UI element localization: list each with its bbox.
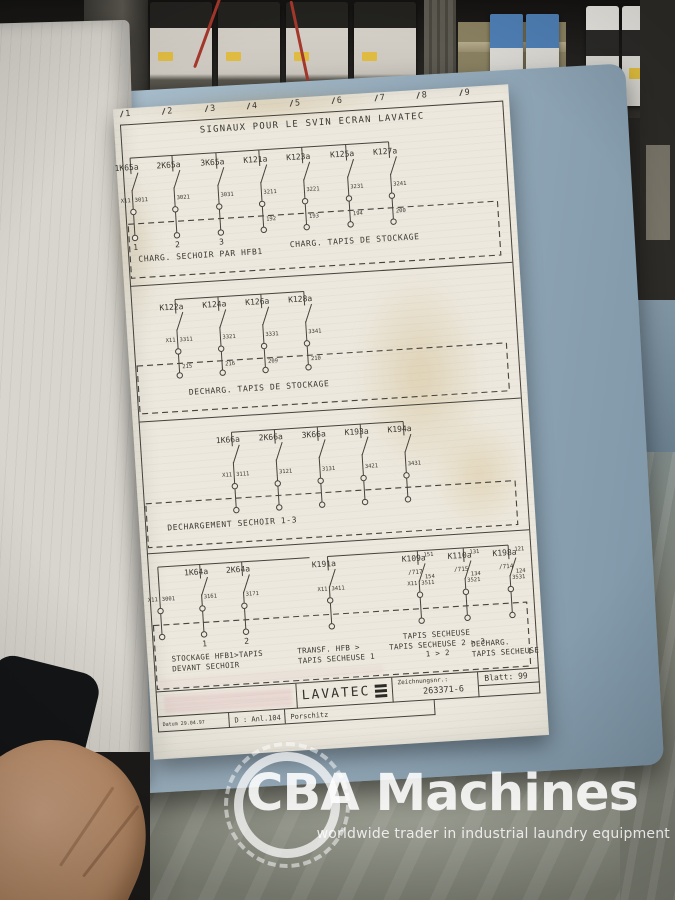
connector-circle	[263, 367, 269, 373]
wire-line	[263, 324, 264, 343]
wire-line	[305, 204, 306, 224]
wire-number: 194	[353, 212, 363, 218]
wire-line	[261, 182, 262, 201]
wire-line	[242, 574, 250, 592]
wire-line	[364, 481, 365, 499]
connector-circle	[159, 634, 165, 640]
terminal-number: 3341	[308, 329, 322, 335]
connector-circle	[405, 496, 411, 502]
wire-line	[245, 609, 246, 629]
wire-line	[276, 460, 277, 481]
wire-line	[420, 598, 421, 618]
wire-number: 193	[309, 214, 319, 220]
connector-circle	[329, 623, 335, 629]
connector-circle	[220, 370, 226, 376]
connector-circle	[174, 232, 180, 238]
title-block-sheet-cell: Blatt: 99	[477, 668, 540, 697]
wire-line	[232, 445, 240, 463]
wire-line	[318, 439, 326, 457]
wire-line	[233, 462, 234, 483]
wire-line	[203, 611, 204, 631]
connector-circle	[131, 209, 137, 215]
terminal-number: 3431	[408, 461, 422, 467]
wire-line	[391, 174, 392, 193]
wire-line	[264, 349, 265, 367]
photo-scene: 123456789 SIGNAUX POUR LE SVIN ECRAN LAV…	[0, 0, 675, 900]
circuit-breaker	[150, 2, 212, 100]
connector-circle	[463, 589, 469, 595]
wire-line	[404, 434, 412, 452]
connector-circle	[304, 224, 310, 230]
connector-circle	[201, 632, 207, 638]
wire-line	[466, 595, 467, 615]
lavatec-logo-icon	[375, 684, 388, 698]
terminal-number: 3001	[162, 597, 176, 603]
pink-stamp	[164, 687, 293, 713]
connector-circle	[302, 198, 308, 204]
wire-line	[349, 201, 350, 221]
terminal-number: 3531	[512, 575, 526, 581]
lavatec-logo: LAVATEC	[301, 684, 371, 703]
wire-line	[201, 577, 209, 595]
connector-circle	[200, 606, 206, 612]
connector-circle	[306, 364, 312, 370]
plant-field: D : Anl.104	[234, 714, 281, 725]
wire-line	[303, 162, 311, 180]
connector-circle	[261, 227, 267, 233]
connector-circle	[361, 475, 367, 481]
connector-circle	[242, 603, 248, 609]
wire-line	[218, 185, 219, 204]
connector-circle	[232, 483, 238, 489]
wire-line	[202, 594, 203, 605]
divider	[228, 713, 230, 727]
plug-pin-number: 1	[196, 640, 212, 649]
terminal-number: 3331	[265, 332, 279, 338]
drawing-number-value: 263371-6	[423, 684, 465, 697]
terminal-number: 3211	[263, 190, 277, 196]
terminal-number: 3241	[393, 182, 407, 188]
connector-circle	[389, 193, 395, 199]
sheet-number: Blatt: 99	[484, 671, 528, 683]
wire-number: 209	[268, 359, 278, 365]
terminal-number: 3021	[177, 195, 191, 201]
terminal-number: 3121	[279, 470, 293, 476]
terminal-number: 3161	[204, 595, 218, 601]
wire-line	[131, 173, 139, 191]
wire-line	[348, 176, 349, 195]
date-field: Datum 29.04.97	[163, 720, 205, 729]
wire-line	[275, 442, 283, 460]
wire-line	[176, 312, 184, 330]
connector-circle	[261, 343, 267, 349]
cabinet-side-box	[646, 145, 670, 240]
breaker-label-chip	[158, 52, 173, 61]
plug-pin-number: 2	[238, 637, 254, 646]
terminal-number: 3421	[365, 464, 379, 470]
connector-circle	[417, 592, 423, 598]
connector-circle	[318, 478, 324, 484]
connector-circle	[404, 473, 410, 479]
wire-line	[347, 159, 355, 177]
wire-line	[362, 454, 363, 475]
wire-line	[405, 451, 406, 472]
wire-line	[260, 165, 268, 183]
connector-circle	[327, 598, 333, 604]
wire-line	[304, 179, 305, 198]
terminal-number: 3131	[322, 467, 336, 473]
wire-line	[329, 586, 330, 597]
wire-line	[174, 187, 175, 206]
contact-pin-number: 121	[514, 547, 524, 553]
connector-circle	[177, 373, 183, 379]
wire-line	[510, 575, 511, 586]
wire-line	[161, 614, 162, 634]
connector-circle	[319, 502, 325, 508]
breaker-label-chip	[226, 52, 241, 61]
location-field: Porschitz	[290, 711, 328, 721]
wire-line	[389, 156, 397, 174]
wire-line	[177, 329, 178, 348]
wire-line	[173, 170, 181, 188]
connector-circle	[304, 340, 310, 346]
connector-circle	[391, 219, 397, 225]
connector-circle	[216, 204, 222, 210]
divider	[284, 709, 286, 723]
terminal-number: 3311	[179, 338, 193, 344]
connector-circle	[132, 235, 138, 241]
wire-line	[220, 327, 221, 346]
connector-circle	[158, 608, 164, 614]
wire-number: 216	[225, 362, 235, 368]
terminal-number: 3231	[350, 184, 364, 190]
wire-line	[243, 592, 244, 603]
wire-line	[392, 199, 393, 219]
wire-line	[330, 603, 331, 623]
connector-circle	[218, 230, 224, 236]
connector-circle	[243, 629, 249, 635]
terminal-number: 3411	[331, 586, 345, 592]
dashed-group-box	[146, 481, 518, 548]
terminal-number: 3511	[421, 581, 435, 587]
terminal-number: 3011	[135, 198, 149, 204]
wire-line	[319, 457, 320, 478]
connector-circle	[233, 507, 239, 513]
wire-line	[134, 215, 135, 235]
connector-circle	[348, 222, 354, 228]
plug-pin-number: 1	[127, 243, 143, 252]
terminal-number: 3171	[246, 592, 260, 598]
connector-circle	[419, 618, 425, 624]
wire-number: 210	[311, 357, 321, 363]
connector-circle	[259, 201, 265, 207]
terminal-number: 3221	[306, 187, 320, 193]
connector-circle	[510, 612, 516, 618]
breaker-label-chip	[362, 52, 377, 61]
wire-line	[511, 592, 512, 612]
wire-line	[328, 569, 336, 587]
wire-line	[219, 309, 227, 327]
wire-line	[465, 578, 466, 589]
wire-line	[305, 304, 313, 322]
connector-circle	[346, 196, 352, 202]
connector-circle	[275, 481, 281, 487]
wire-line	[262, 307, 270, 325]
wire-number: 215	[182, 365, 192, 371]
connector-circle	[362, 499, 368, 505]
connector-circle	[218, 346, 224, 352]
schematic-page: 123456789 SIGNAUX POUR LE SVIN ECRAN LAV…	[113, 84, 549, 760]
wire-line	[262, 207, 263, 227]
connector-circle	[508, 586, 514, 592]
wire-line	[219, 210, 220, 230]
wire-line	[419, 581, 420, 592]
wire-line	[306, 321, 307, 340]
wire-line	[361, 437, 369, 455]
wire-number: 192	[266, 217, 276, 223]
terminal-number: 3031	[220, 193, 234, 199]
terminal-number: 3521	[467, 578, 481, 584]
wire-number: 200	[396, 209, 406, 215]
wire-line	[132, 190, 133, 209]
terminal-number: 3111	[236, 472, 250, 478]
connector-circle	[175, 349, 181, 355]
connector-circle	[276, 505, 282, 511]
wire-line	[217, 167, 225, 185]
wire-line	[176, 212, 177, 232]
terminal-number: 3321	[222, 335, 236, 341]
connector-circle	[465, 615, 471, 621]
plug-pin-number: 3	[213, 238, 229, 247]
connector-circle	[172, 206, 178, 212]
plug-pin-number: 2	[169, 241, 185, 250]
